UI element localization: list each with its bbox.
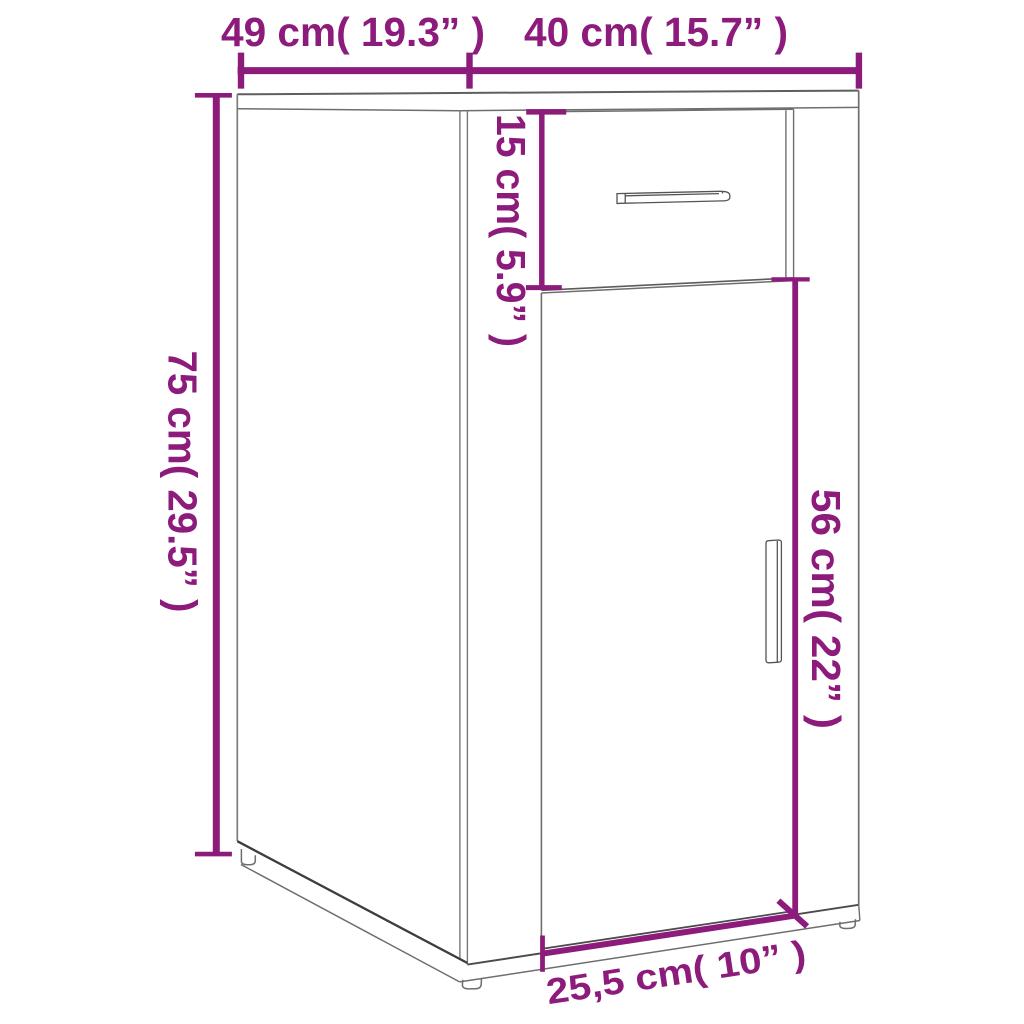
svg-text:49 cm( 19.3” ): 49 cm( 19.3” ) xyxy=(221,9,485,55)
svg-text:56 cm( 22” ): 56 cm( 22” ) xyxy=(803,489,849,729)
svg-text:75 cm( 29.5” ): 75 cm( 29.5” ) xyxy=(160,351,206,613)
svg-text:15 cm( 5.9” ): 15 cm( 5.9” ) xyxy=(488,114,534,347)
svg-text:40 cm( 15.7” ): 40 cm( 15.7” ) xyxy=(524,9,788,55)
